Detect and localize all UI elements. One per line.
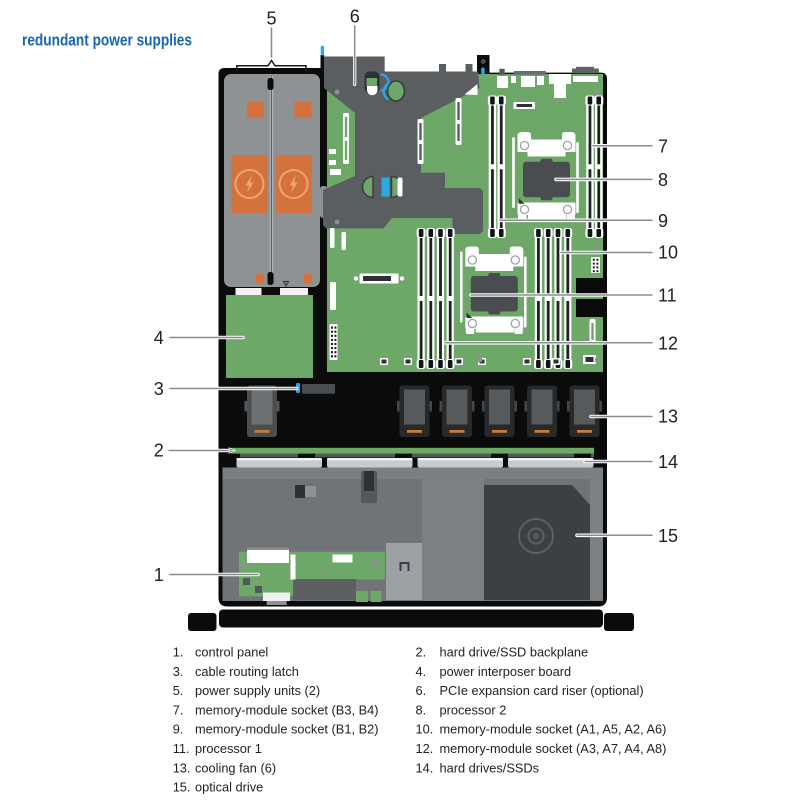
svg-text:control panel: control panel — [195, 645, 268, 660]
svg-text:11.: 11. — [173, 741, 190, 756]
svg-text:13.: 13. — [173, 760, 191, 775]
svg-text:memory-module socket (A1, A5,: memory-module socket (A1, A5, A2, A6) — [440, 722, 667, 737]
svg-text:9: 9 — [658, 211, 668, 231]
svg-text:1: 1 — [154, 565, 164, 585]
svg-text:cable routing latch: cable routing latch — [195, 664, 299, 679]
svg-text:10: 10 — [658, 243, 678, 263]
svg-text:4.: 4. — [416, 664, 427, 679]
svg-text:8: 8 — [658, 170, 668, 190]
svg-text:3: 3 — [154, 379, 164, 399]
svg-text:12: 12 — [658, 333, 678, 353]
svg-text:memory-module socket (A3, A7,: memory-module socket (A3, A7, A4, A8) — [440, 741, 667, 756]
svg-text:6: 6 — [350, 7, 360, 27]
svg-text:12.: 12. — [416, 741, 434, 756]
svg-text:9.: 9. — [173, 722, 184, 737]
svg-text:7: 7 — [658, 136, 668, 156]
svg-text:cooling fan (6): cooling fan (6) — [195, 760, 276, 775]
svg-text:1.: 1. — [173, 645, 184, 660]
svg-text:14: 14 — [658, 452, 678, 472]
svg-text:2: 2 — [154, 441, 164, 461]
svg-text:processor 2: processor 2 — [440, 702, 507, 717]
svg-text:11: 11 — [658, 285, 677, 305]
svg-text:processor 1: processor 1 — [195, 741, 262, 756]
svg-text:15: 15 — [658, 526, 678, 546]
svg-text:3.: 3. — [173, 664, 184, 679]
svg-text:8.: 8. — [416, 702, 427, 717]
svg-text:memory-module socket (B3, B4): memory-module socket (B3, B4) — [195, 702, 378, 717]
svg-text:hard drive/SSD backplane: hard drive/SSD backplane — [440, 645, 589, 660]
svg-text:15.: 15. — [173, 780, 191, 795]
svg-text:14.: 14. — [416, 760, 434, 775]
svg-text:redundant power supplies: redundant power supplies — [22, 32, 192, 50]
svg-text:13: 13 — [658, 406, 678, 426]
svg-text:2.: 2. — [416, 645, 427, 660]
svg-text:5: 5 — [266, 9, 276, 29]
svg-text:hard drives/SSDs: hard drives/SSDs — [440, 760, 540, 775]
svg-text:6.: 6. — [416, 683, 427, 698]
svg-text:10.: 10. — [416, 722, 434, 737]
svg-text:5.: 5. — [173, 683, 184, 698]
svg-text:power interposer board: power interposer board — [440, 664, 572, 679]
svg-text:memory-module socket (B1, B2): memory-module socket (B1, B2) — [195, 722, 378, 737]
svg-text:optical drive: optical drive — [195, 780, 263, 795]
svg-text:PCIe expansion card riser (opt: PCIe expansion card riser (optional) — [440, 683, 644, 698]
svg-text:4: 4 — [154, 328, 164, 348]
svg-text:7.: 7. — [173, 702, 184, 717]
svg-text:power supply units (2): power supply units (2) — [195, 683, 320, 698]
